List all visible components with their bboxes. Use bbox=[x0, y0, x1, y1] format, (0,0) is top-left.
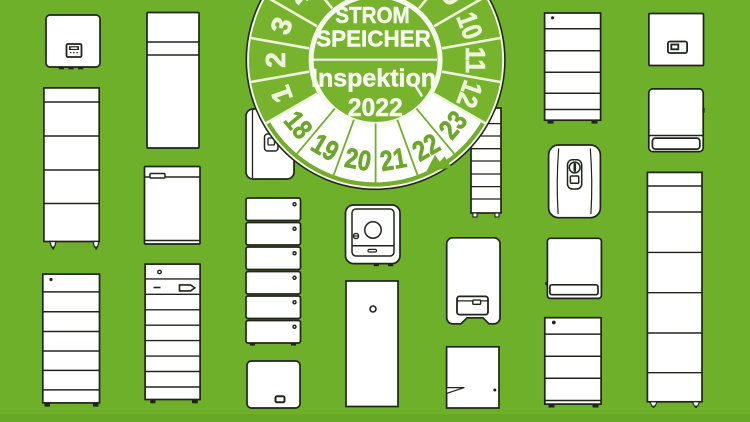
svg-text:STROM: STROM bbox=[335, 2, 410, 28]
svg-text:11: 11 bbox=[460, 47, 491, 73]
svg-text:21: 21 bbox=[378, 142, 409, 177]
svg-text:20: 20 bbox=[343, 142, 374, 177]
svg-text:SPEICHER: SPEICHER bbox=[316, 25, 431, 51]
svg-text:2: 2 bbox=[260, 52, 291, 68]
svg-text:2022: 2022 bbox=[348, 94, 403, 122]
